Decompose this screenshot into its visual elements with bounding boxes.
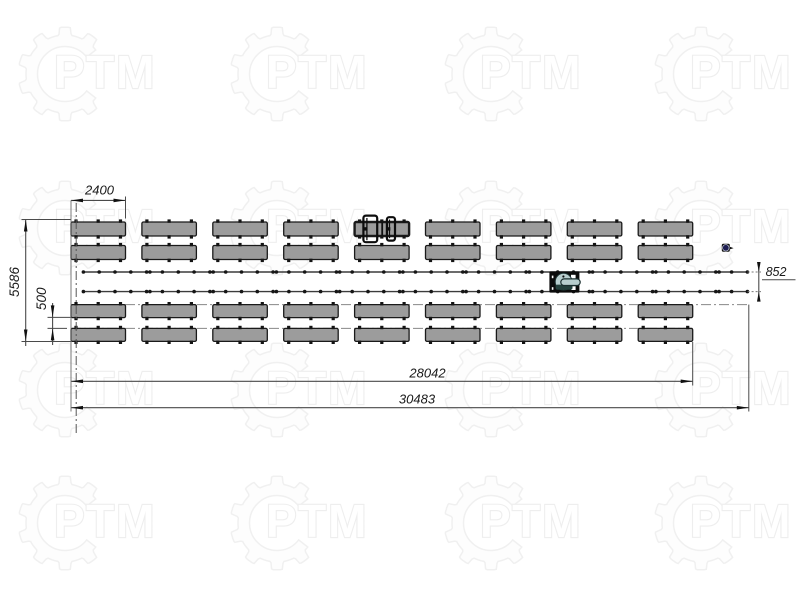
svg-text:2400: 2400 [84,183,115,198]
svg-text:5586: 5586 [7,266,22,297]
svg-text:500: 500 [34,287,49,310]
svg-text:30483: 30483 [399,392,436,407]
svg-text:28042: 28042 [408,365,446,380]
svg-text:852: 852 [766,265,787,279]
